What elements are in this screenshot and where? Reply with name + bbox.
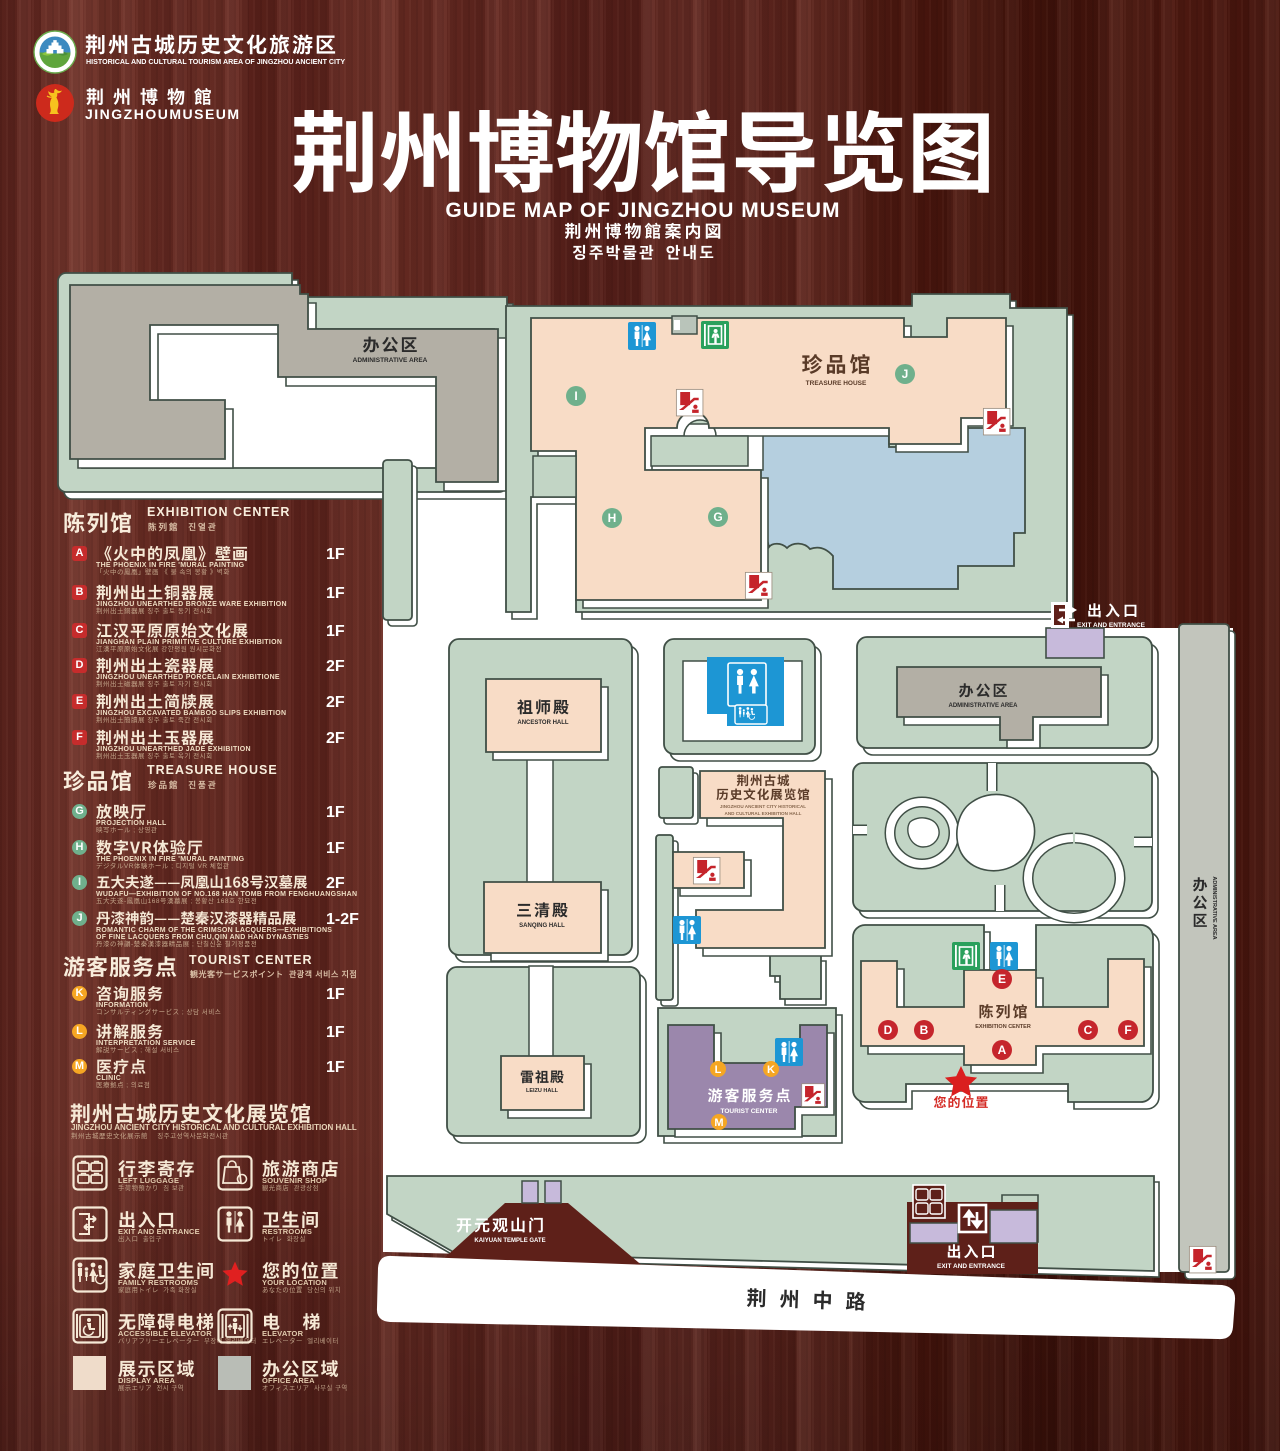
svg-text:ANCESTOR HALL: ANCESTOR HALL [517, 720, 569, 726]
svg-text:H: H [608, 511, 617, 525]
svg-text:I: I [574, 389, 577, 403]
svg-text:TREASURE HOUSE: TREASURE HOUSE [806, 380, 867, 387]
svg-text:LEIZU HALL: LEIZU HALL [526, 1088, 559, 1094]
svg-text:KAIYUAN TEMPLE GATE: KAIYUAN TEMPLE GATE [474, 1238, 545, 1244]
svg-text:F: F [1124, 1023, 1131, 1037]
svg-text:ADMINISTRATIVE AREA: ADMINISTRATIVE AREA [353, 357, 428, 364]
svg-text:K: K [767, 1064, 775, 1076]
svg-text:SANQING HALL: SANQING HALL [519, 923, 565, 929]
svg-text:ADMINISTRATIVE AREA: ADMINISTRATIVE AREA [949, 703, 1019, 709]
svg-text:EXIT AND ENTRANCE: EXIT AND ENTRANCE [1077, 622, 1146, 629]
svg-text:M: M [714, 1117, 723, 1129]
svg-text:D: D [884, 1023, 893, 1037]
svg-text:ADMINISTRATIVE AREA: ADMINISTRATIVE AREA [1211, 876, 1217, 939]
svg-text:JINGZHOU ANCIENT CITY HISTORIC: JINGZHOU ANCIENT CITY HISTORICAL [720, 804, 806, 809]
svg-text:EXIT AND ENTRANCE: EXIT AND ENTRANCE [937, 1263, 1006, 1270]
svg-text:E: E [998, 972, 1006, 986]
svg-text:G: G [713, 510, 722, 524]
svg-text:EXHIBITION CENTER: EXHIBITION CENTER [975, 1024, 1031, 1030]
svg-text:A: A [998, 1043, 1007, 1057]
svg-text:J: J [902, 367, 909, 381]
svg-text:AND CULTURAL EXHIBITION HALL: AND CULTURAL EXHIBITION HALL [725, 811, 802, 816]
svg-text:TOURIST CENTER: TOURIST CENTER [721, 1108, 778, 1115]
svg-text:B: B [920, 1023, 929, 1037]
svg-text:L: L [715, 1064, 722, 1076]
svg-text:C: C [1084, 1023, 1093, 1037]
